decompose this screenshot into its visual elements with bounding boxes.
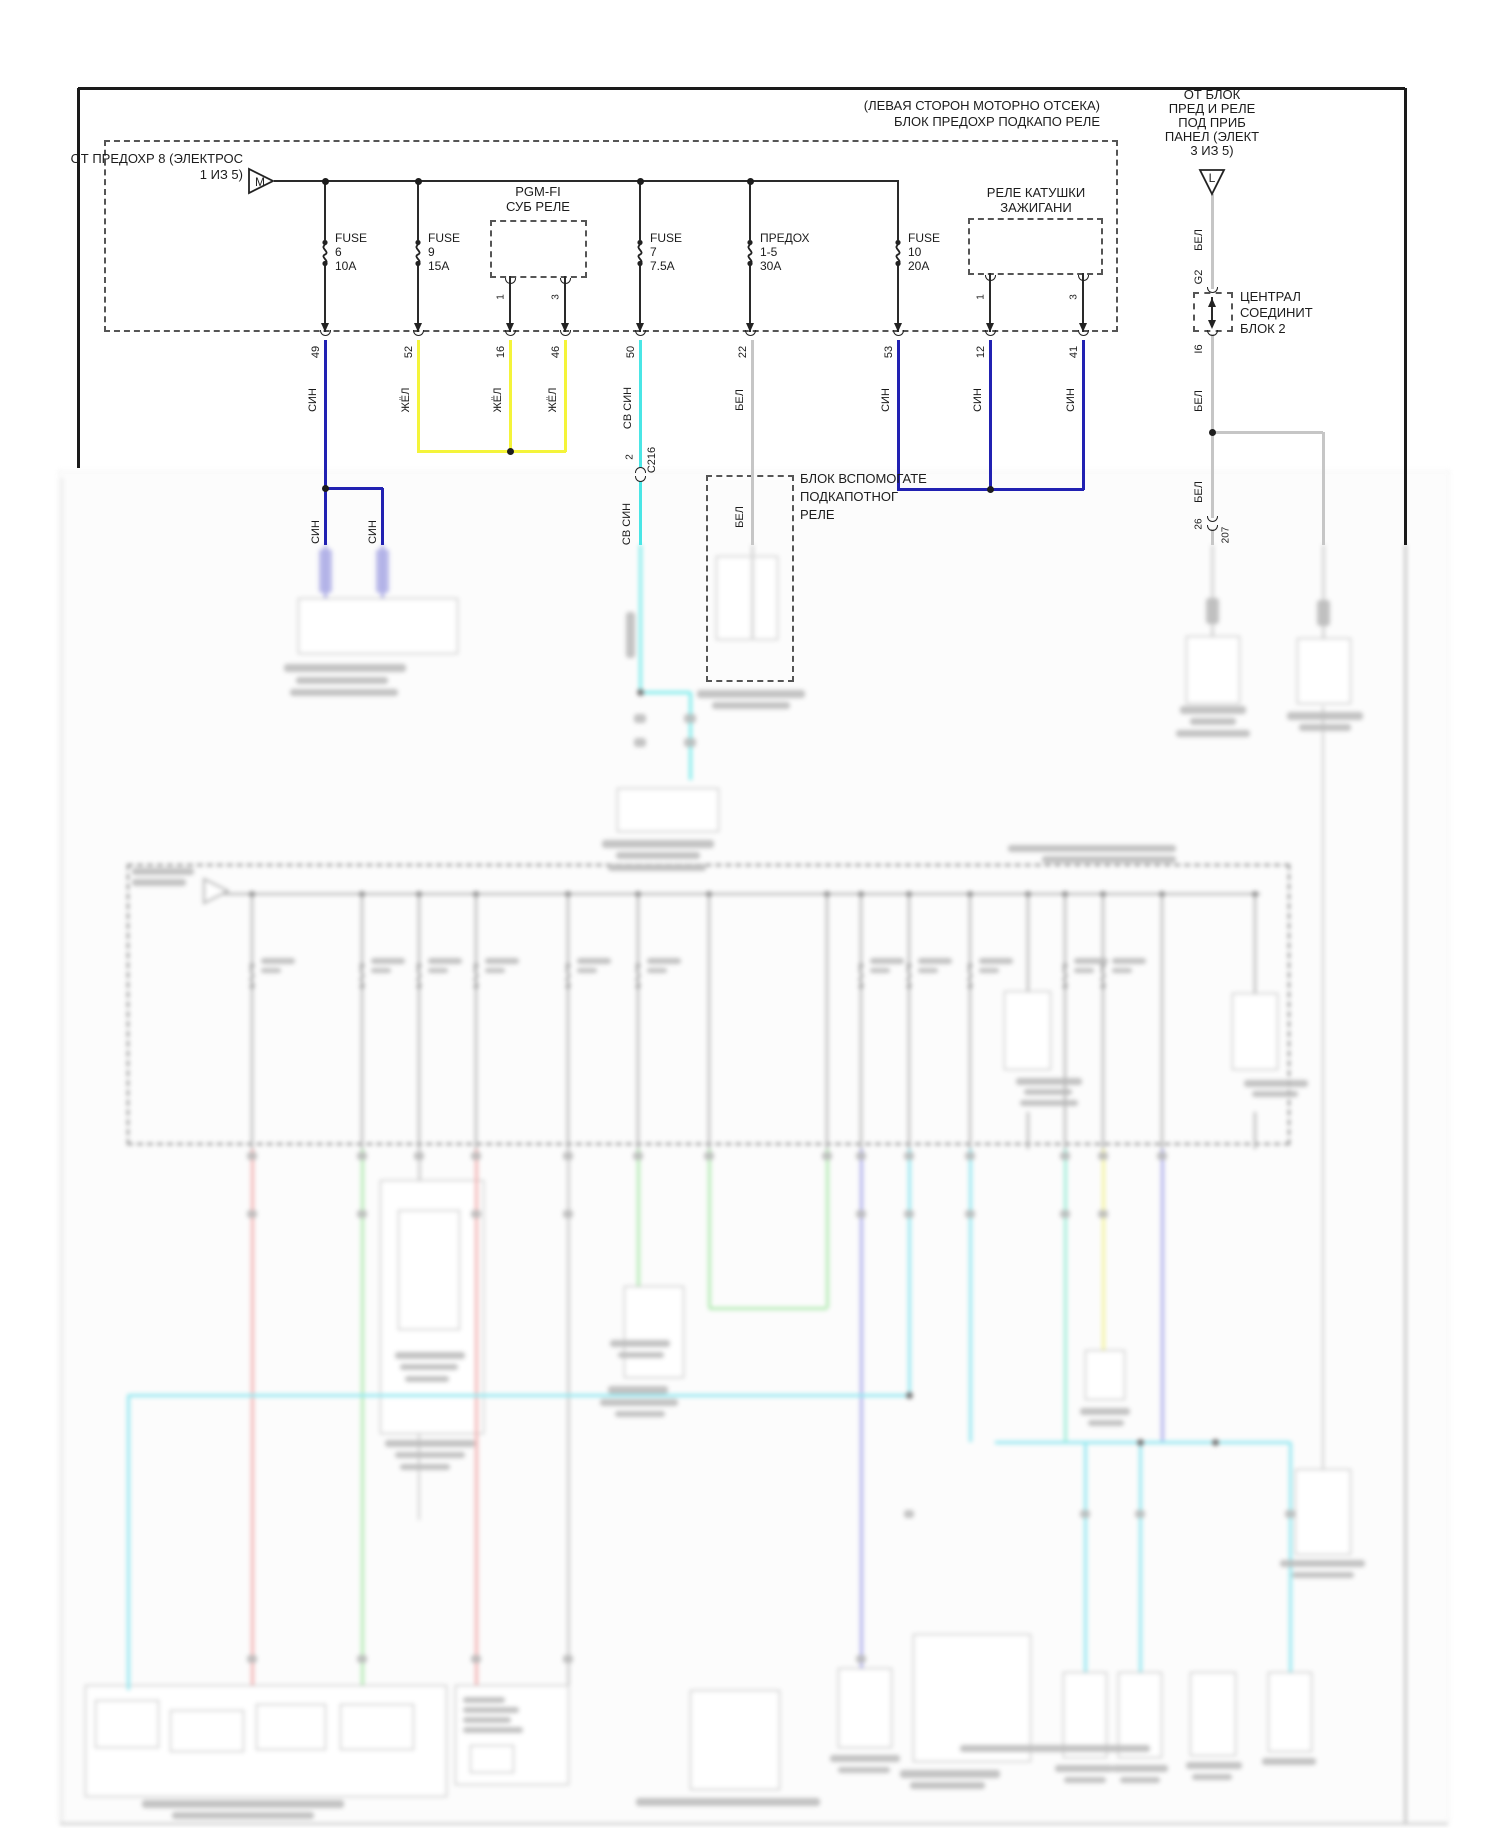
wire-label: 49: [310, 346, 322, 358]
wire-label: СВ СИН: [622, 387, 634, 429]
junction-dot: [1209, 429, 1216, 436]
wire: [564, 340, 567, 452]
wire: [639, 181, 641, 240]
wire: [417, 340, 420, 452]
ignition-coil-relay-title-line2: ЗАЖИГАНИ: [956, 200, 1116, 215]
ignition-coil-relay-title-line1: РЕЛЕ КАТУШКИ: [956, 185, 1116, 200]
junction-dot: [322, 178, 329, 185]
dashed-component-box: [490, 220, 587, 278]
wire-label: БЕЛ: [1193, 229, 1205, 251]
arrowhead-icon: [414, 323, 422, 332]
wire: [324, 262, 326, 332]
wire-label: БЕЛ: [1193, 481, 1205, 503]
connector-terminal-icon: [1207, 516, 1218, 522]
wire-label: ЖЁЛ: [547, 388, 559, 413]
fuse-label: ПРЕДОХ1-530A: [760, 231, 810, 273]
svg-text:L: L: [1209, 171, 1216, 185]
junction-dot: [747, 178, 754, 185]
wire-label: СИН: [367, 520, 379, 544]
wire: [325, 487, 383, 490]
wire-label: C216: [646, 447, 658, 473]
arrowhead-icon: [1208, 320, 1216, 329]
wire-label: 52: [403, 346, 415, 358]
wire-label: СИН: [307, 388, 319, 412]
central-joint-box-label-line3: БЛОК 2: [1240, 321, 1286, 336]
connector-terminal-icon: [635, 476, 646, 482]
region-caption-line1: (ЛЕВАЯ СТОРОН МОТОРНО ОТСЕКА): [864, 98, 1100, 113]
right-source-label-line3: ПОД ПРИБ: [1132, 115, 1292, 130]
wire: [639, 262, 641, 332]
wire: [749, 181, 751, 240]
wire: [751, 340, 754, 545]
top-schematic-section: FUSE610AFUSE915AFUSE77.5AПРЕДОХ1-530AFUS…: [0, 0, 1500, 1828]
central-joint-box-label-line1: ЦЕНТРАЛ: [1240, 289, 1301, 304]
wire-label: 26: [1194, 518, 1205, 529]
wire: [509, 340, 512, 452]
arrowhead-icon: [1079, 323, 1087, 332]
wire: [639, 340, 642, 468]
fuse-icon: [633, 239, 647, 267]
wire-label: 50: [625, 346, 637, 358]
right-source-label-line5: 3 ИЗ 5): [1132, 143, 1292, 158]
wire-label: 41: [1068, 346, 1080, 358]
aux-underhood-relay-box-label-line2: ПОДКАПОТНОГ: [800, 489, 898, 504]
wire: [1322, 432, 1325, 545]
wire: [324, 340, 327, 545]
connector-terminal-icon: [1207, 525, 1218, 531]
right-source-label-line2: ПРЕД И РЕЛЕ: [1132, 101, 1292, 116]
wire-label: БЕЛ: [734, 389, 746, 411]
wire: [1211, 194, 1214, 289]
dashed-component-box: [968, 218, 1103, 275]
wire-label: 1: [496, 294, 507, 300]
junction-dot: [322, 485, 329, 492]
fuse-icon: [743, 239, 757, 267]
wire: [1082, 340, 1085, 490]
wire-label: БЕЛ: [734, 506, 746, 528]
wire: [897, 262, 899, 332]
wire: [749, 262, 751, 332]
wire: [324, 181, 326, 240]
wire-label: I6: [1193, 344, 1205, 353]
wire: [639, 481, 642, 545]
fuse-icon: [318, 239, 332, 267]
arrowhead-icon: [894, 323, 902, 332]
arrowhead-icon: [636, 323, 644, 332]
wire-label: 46: [550, 346, 562, 358]
wire: [897, 181, 899, 240]
arrowhead-icon: [1208, 298, 1216, 307]
fuse-label: FUSE1020A: [908, 231, 940, 273]
fuse-icon: [411, 239, 425, 267]
junction-dot: [507, 448, 514, 455]
wire-label: 1: [976, 294, 987, 300]
region-caption-line2: БЛОК ПРЕДОХР ПОДКАПО РЕЛЕ: [894, 114, 1100, 129]
wire-label: 207: [1221, 527, 1232, 544]
wire-label: 16: [495, 346, 507, 358]
arrowhead-icon: [746, 323, 754, 332]
wire: [1404, 88, 1407, 545]
fuse-icon: [891, 239, 905, 267]
wire-label: 3: [551, 294, 562, 300]
fuse-label: FUSE915A: [428, 231, 460, 273]
aux-underhood-relay-box-label-line1: БЛОК ВСПОМОГАТЕ: [800, 471, 927, 486]
left-source-label-line1: ОТ ПРЕДОХР 8 (ЭЛЕКТРОС: [71, 151, 243, 166]
wire-label: 2: [625, 454, 636, 460]
wire: [1212, 431, 1323, 434]
svg-text:M: M: [255, 175, 265, 189]
wire-label: СИН: [972, 388, 984, 412]
wire-label: СИН: [310, 520, 322, 544]
right-source-label-line4: ПАНЕЛ (ЭЛЕКТ: [1132, 129, 1292, 144]
pgm-relay-title-line2: СУБ РЕЛЕ: [458, 199, 618, 214]
wire: [417, 450, 566, 453]
wire: [381, 488, 384, 545]
wire-label: ЖЁЛ: [492, 388, 504, 413]
wire-label: СИН: [1065, 388, 1077, 412]
connector-terminal-icon: [1207, 330, 1218, 336]
wire: [274, 180, 899, 182]
left-source-label-line2: 1 ИЗ 5): [200, 167, 243, 182]
source-marker-M-icon: M: [247, 167, 275, 195]
wire-label: ЖЁЛ: [400, 388, 412, 413]
wire-label: G2: [1193, 270, 1205, 285]
junction-dot: [415, 178, 422, 185]
wire: [1211, 529, 1214, 545]
central-joint-box-label-line2: СОЕДИНИТ: [1240, 305, 1313, 320]
wire: [897, 340, 900, 490]
wire: [989, 340, 992, 489]
pgm-relay-title-line1: PGM-FI: [458, 184, 618, 199]
wire-label: 12: [975, 346, 987, 358]
junction-dot: [637, 178, 644, 185]
wiring-diagram-page: FUSE610AFUSE915AFUSE77.5AПРЕДОХ1-530AFUS…: [0, 0, 1500, 1828]
wire-label: 53: [883, 346, 895, 358]
arrowhead-icon: [561, 323, 569, 332]
wire-label: 3: [1069, 294, 1080, 300]
wire-label: БЕЛ: [1193, 390, 1205, 412]
wire: [417, 181, 419, 240]
right-source-label-line1: ОТ БЛОК: [1132, 87, 1292, 102]
wire: [1211, 432, 1214, 518]
wire: [77, 88, 80, 468]
aux-underhood-relay-box-label-line3: РЕЛЕ: [800, 507, 835, 522]
wire-label: СВ СИН: [621, 503, 633, 545]
connector-terminal-icon: [635, 467, 646, 473]
junction-dot: [987, 486, 994, 493]
fuse-label: FUSE77.5A: [650, 231, 682, 273]
arrowhead-icon: [986, 323, 994, 332]
wire: [417, 262, 419, 332]
wire-label: 22: [737, 346, 749, 358]
fuse-label: FUSE610A: [335, 231, 367, 273]
wire-label: СИН: [880, 388, 892, 412]
wire: [1211, 334, 1214, 432]
source-marker-L-icon: L: [1198, 168, 1226, 196]
arrowhead-icon: [321, 323, 329, 332]
arrowhead-icon: [506, 323, 514, 332]
